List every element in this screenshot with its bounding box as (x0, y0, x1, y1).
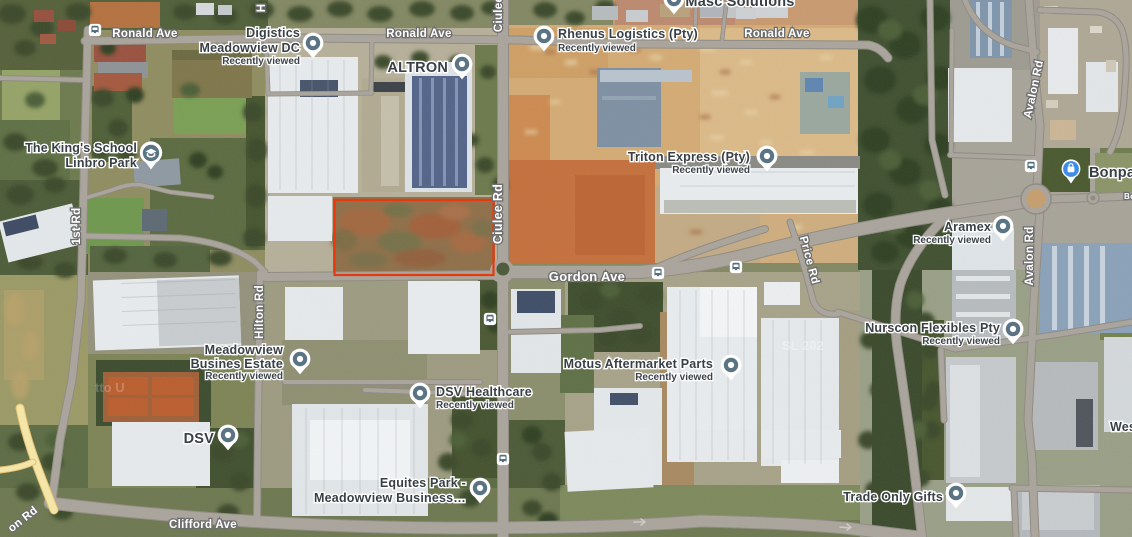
svg-text:Trade Only Gifts: Trade Only Gifts (843, 490, 943, 504)
svg-text:Recently viewed: Recently viewed (913, 235, 991, 246)
svg-text:Meadowview DC: Meadowview DC (199, 41, 300, 55)
svg-text:Linbro Park: Linbro Park (65, 156, 137, 170)
svg-text:Busines Estate: Busines Estate (191, 357, 283, 371)
svg-text:Recently viewed: Recently viewed (436, 400, 514, 411)
svg-text:Hilton Rd: Hilton Rd (254, 285, 266, 339)
svg-text:SL 202: SL 202 (782, 338, 824, 353)
svg-text:Meadowview Business…: Meadowview Business… (314, 491, 466, 505)
svg-text:Masc Solutions: Masc Solutions (685, 0, 794, 10)
svg-text:Wes: Wes (1110, 420, 1132, 434)
svg-text:Recently viewed: Recently viewed (635, 372, 713, 383)
svg-text:Meadowview: Meadowview (205, 343, 283, 357)
svg-text:Clifford Ave: Clifford Ave (169, 519, 237, 531)
svg-text:tto U: tto U (95, 380, 125, 395)
svg-text:Bcn: Bcn (1124, 192, 1132, 201)
svg-text:Recently viewed: Recently viewed (205, 371, 283, 382)
svg-text:ALTRON: ALTRON (387, 60, 448, 76)
svg-text:Ronald Ave: Ronald Ave (112, 28, 177, 40)
svg-text:Ronald Ave: Ronald Ave (744, 28, 809, 40)
svg-text:Ciulee: Ciulee (493, 0, 505, 32)
svg-text:Ciulee Rd: Ciulee Rd (491, 184, 505, 244)
svg-text:Aramex: Aramex (944, 220, 991, 234)
svg-text:The King's School: The King's School (25, 141, 137, 155)
svg-text:H: H (256, 4, 268, 13)
svg-text:Triton Express (Pty): Triton Express (Pty) (628, 150, 750, 164)
svg-text:1st Rd: 1st Rd (71, 208, 83, 245)
svg-text:Equites Park -: Equites Park - (380, 476, 466, 490)
svg-text:Avalon Rd: Avalon Rd (1024, 226, 1036, 285)
svg-text:Recently viewed: Recently viewed (922, 336, 1000, 347)
svg-text:Motus Aftermarket Parts: Motus Aftermarket Parts (564, 357, 713, 371)
svg-text:Bonpak: Bonpak (1089, 165, 1132, 181)
svg-text:DSV Healthcare: DSV Healthcare (436, 385, 532, 399)
svg-text:DSV: DSV (184, 431, 215, 447)
svg-text:Rhenus Logistics (Pty): Rhenus Logistics (Pty) (558, 27, 698, 41)
svg-text:Digistics: Digistics (246, 26, 300, 40)
svg-text:Recently viewed: Recently viewed (672, 165, 750, 176)
svg-text:Recently viewed: Recently viewed (558, 43, 636, 54)
svg-text:Nurscon Flexibles Pty: Nurscon Flexibles Pty (865, 321, 1000, 335)
svg-text:Gordon Ave: Gordon Ave (549, 269, 625, 284)
svg-text:Recently viewed: Recently viewed (222, 56, 300, 67)
svg-text:Ronald Ave: Ronald Ave (386, 28, 451, 40)
